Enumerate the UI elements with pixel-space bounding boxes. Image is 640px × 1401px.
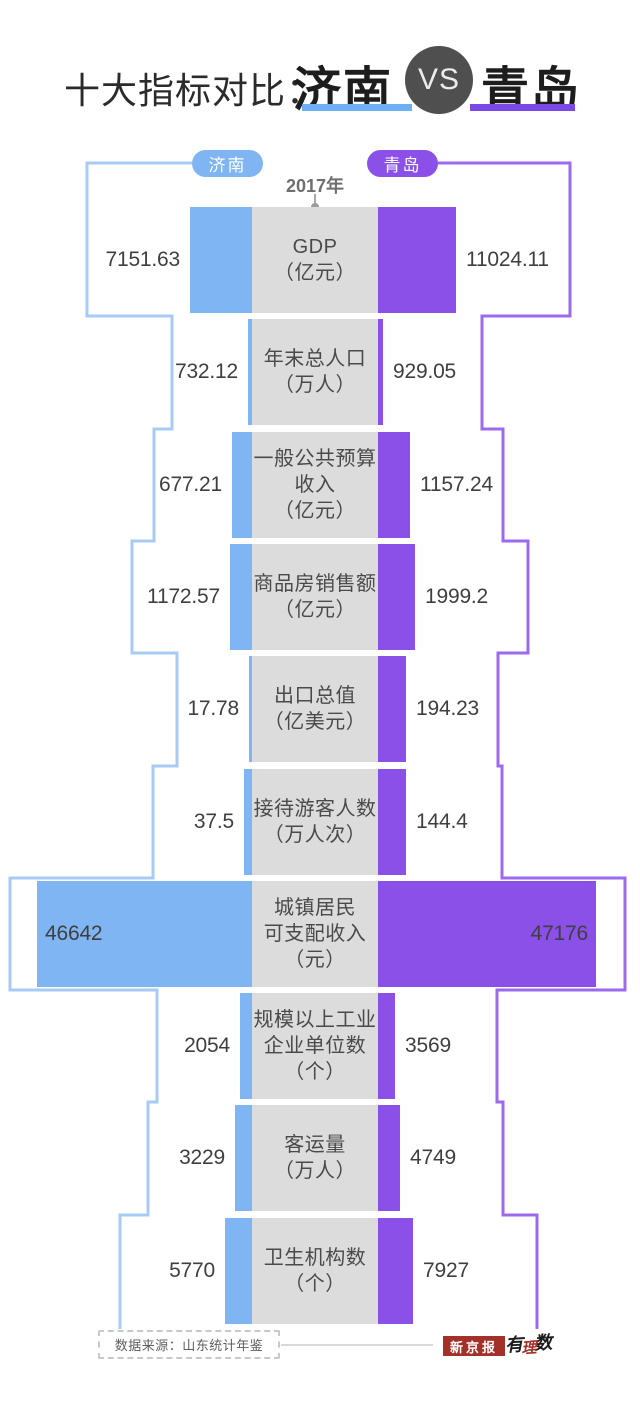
publisher-logo: 新京报 — [443, 1336, 505, 1356]
bar-qingdao — [378, 319, 383, 425]
value-qingdao: 47176 — [378, 922, 588, 946]
indicator-label-line: 企业单位数 — [264, 1033, 367, 1059]
value-jinan: 3229 — [0, 1146, 225, 1170]
qingdao-underline — [470, 104, 575, 111]
value-qingdao: 144.4 — [416, 810, 468, 834]
page-title: 十大指标对比： — [64, 62, 323, 114]
indicator-label-line: 卫生机构数 — [264, 1245, 367, 1271]
value-jinan: 2054 — [0, 1034, 230, 1058]
vs-badge: VS — [405, 46, 473, 114]
indicator-label-line: 规模以上工业 — [254, 1007, 377, 1033]
bar-jinan — [232, 432, 252, 538]
jinan-underline — [302, 104, 412, 111]
indicator-label-line: 城镇居民 — [274, 895, 356, 921]
indicator-box: 商品房销售额（亿元） — [252, 544, 378, 650]
value-qingdao: 1157.24 — [420, 473, 493, 497]
bar-jinan — [244, 769, 252, 875]
footer-divider-line — [281, 1344, 433, 1346]
indicator-label-line: （亿元） — [274, 498, 356, 524]
indicator-box: 规模以上工业企业单位数（个） — [252, 993, 378, 1099]
indicator-label-line: 客运量 — [284, 1132, 346, 1158]
indicator-label-line: （亿元） — [274, 597, 356, 623]
indicator-box: 一般公共预算收入（亿元） — [252, 432, 378, 538]
indicator-label-line: （元） — [284, 947, 346, 973]
bar-qingdao — [378, 769, 406, 875]
indicator-label-line: 一般公共预算 — [254, 446, 377, 472]
value-jinan: 46642 — [45, 922, 102, 946]
indicator-label-line: 可支配收入 — [264, 921, 367, 947]
brand-logo: 有理数 — [504, 1328, 551, 1357]
value-jinan: 7151.63 — [0, 248, 180, 272]
value-jinan: 5770 — [0, 1259, 215, 1283]
value-jinan: 1172.57 — [0, 585, 220, 609]
indicator-box: 出口总值（亿美元） — [252, 656, 378, 762]
indicator-box: 客运量（万人） — [252, 1105, 378, 1211]
indicator-label-line: 出口总值 — [274, 683, 356, 709]
value-qingdao: 929.05 — [393, 360, 456, 384]
indicator-label-line: （亿元） — [274, 260, 356, 286]
indicator-label-line: （万人） — [274, 372, 356, 398]
bar-qingdao — [378, 993, 395, 1099]
bar-qingdao — [378, 656, 406, 762]
bar-qingdao — [378, 432, 410, 538]
value-qingdao: 11024.11 — [466, 248, 549, 272]
indicator-label-line: 接待游客人数 — [254, 796, 377, 822]
legend-pill-qingdao: 青岛 — [367, 150, 438, 177]
data-source-text: 数据来源：山东统计年鉴 — [115, 1335, 264, 1354]
indicator-box: 城镇居民可支配收入（元） — [252, 881, 378, 987]
infographic-canvas: 十大指标对比： 济南 VS 青岛 济南 青岛 2017年 GDP（亿元）7151… — [0, 0, 640, 1401]
bar-jinan — [225, 1218, 252, 1324]
indicator-box: 接待游客人数（万人次） — [252, 769, 378, 875]
legend-pill-jinan: 济南 — [192, 150, 263, 177]
brand-char: 数 — [533, 1332, 550, 1353]
value-jinan: 17.78 — [0, 697, 239, 721]
outline-polyline — [438, 163, 625, 1329]
bar-jinan — [240, 993, 252, 1099]
indicator-label-line: （万人） — [274, 1158, 356, 1184]
indicator-label-line: 收入 — [295, 472, 336, 498]
indicator-label-line: （万人次） — [264, 822, 367, 848]
brand-char: 有 — [504, 1334, 521, 1355]
brand-char: 理 — [521, 1340, 535, 1358]
bar-qingdao — [378, 1218, 413, 1324]
indicator-label-line: 商品房销售额 — [254, 571, 377, 597]
indicator-box: GDP（亿元） — [252, 207, 378, 313]
bar-qingdao — [378, 1105, 400, 1211]
bar-jinan — [230, 544, 252, 650]
bar-jinan — [190, 207, 252, 313]
value-qingdao: 4749 — [410, 1146, 456, 1170]
value-jinan: 732.12 — [0, 360, 238, 384]
value-qingdao: 7927 — [423, 1259, 469, 1283]
indicator-box: 年末总人口（万人） — [252, 319, 378, 425]
indicator-label-line: GDP — [293, 234, 338, 260]
value-jinan: 37.5 — [0, 810, 234, 834]
bar-jinan — [235, 1105, 252, 1211]
indicator-label-line: （个） — [284, 1059, 346, 1085]
bar-qingdao — [378, 544, 415, 650]
bar-qingdao — [378, 207, 456, 313]
value-qingdao: 3569 — [405, 1034, 451, 1058]
indicator-label-line: （个） — [284, 1271, 346, 1297]
indicator-box: 卫生机构数（个） — [252, 1218, 378, 1324]
data-source-box: 数据来源：山东统计年鉴 — [98, 1330, 280, 1359]
value-qingdao: 194.23 — [416, 697, 479, 721]
indicator-label-line: （亿美元） — [264, 709, 367, 735]
indicator-label-line: 年末总人口 — [264, 346, 367, 372]
value-qingdao: 1999.2 — [425, 585, 488, 609]
value-jinan: 677.21 — [0, 473, 222, 497]
